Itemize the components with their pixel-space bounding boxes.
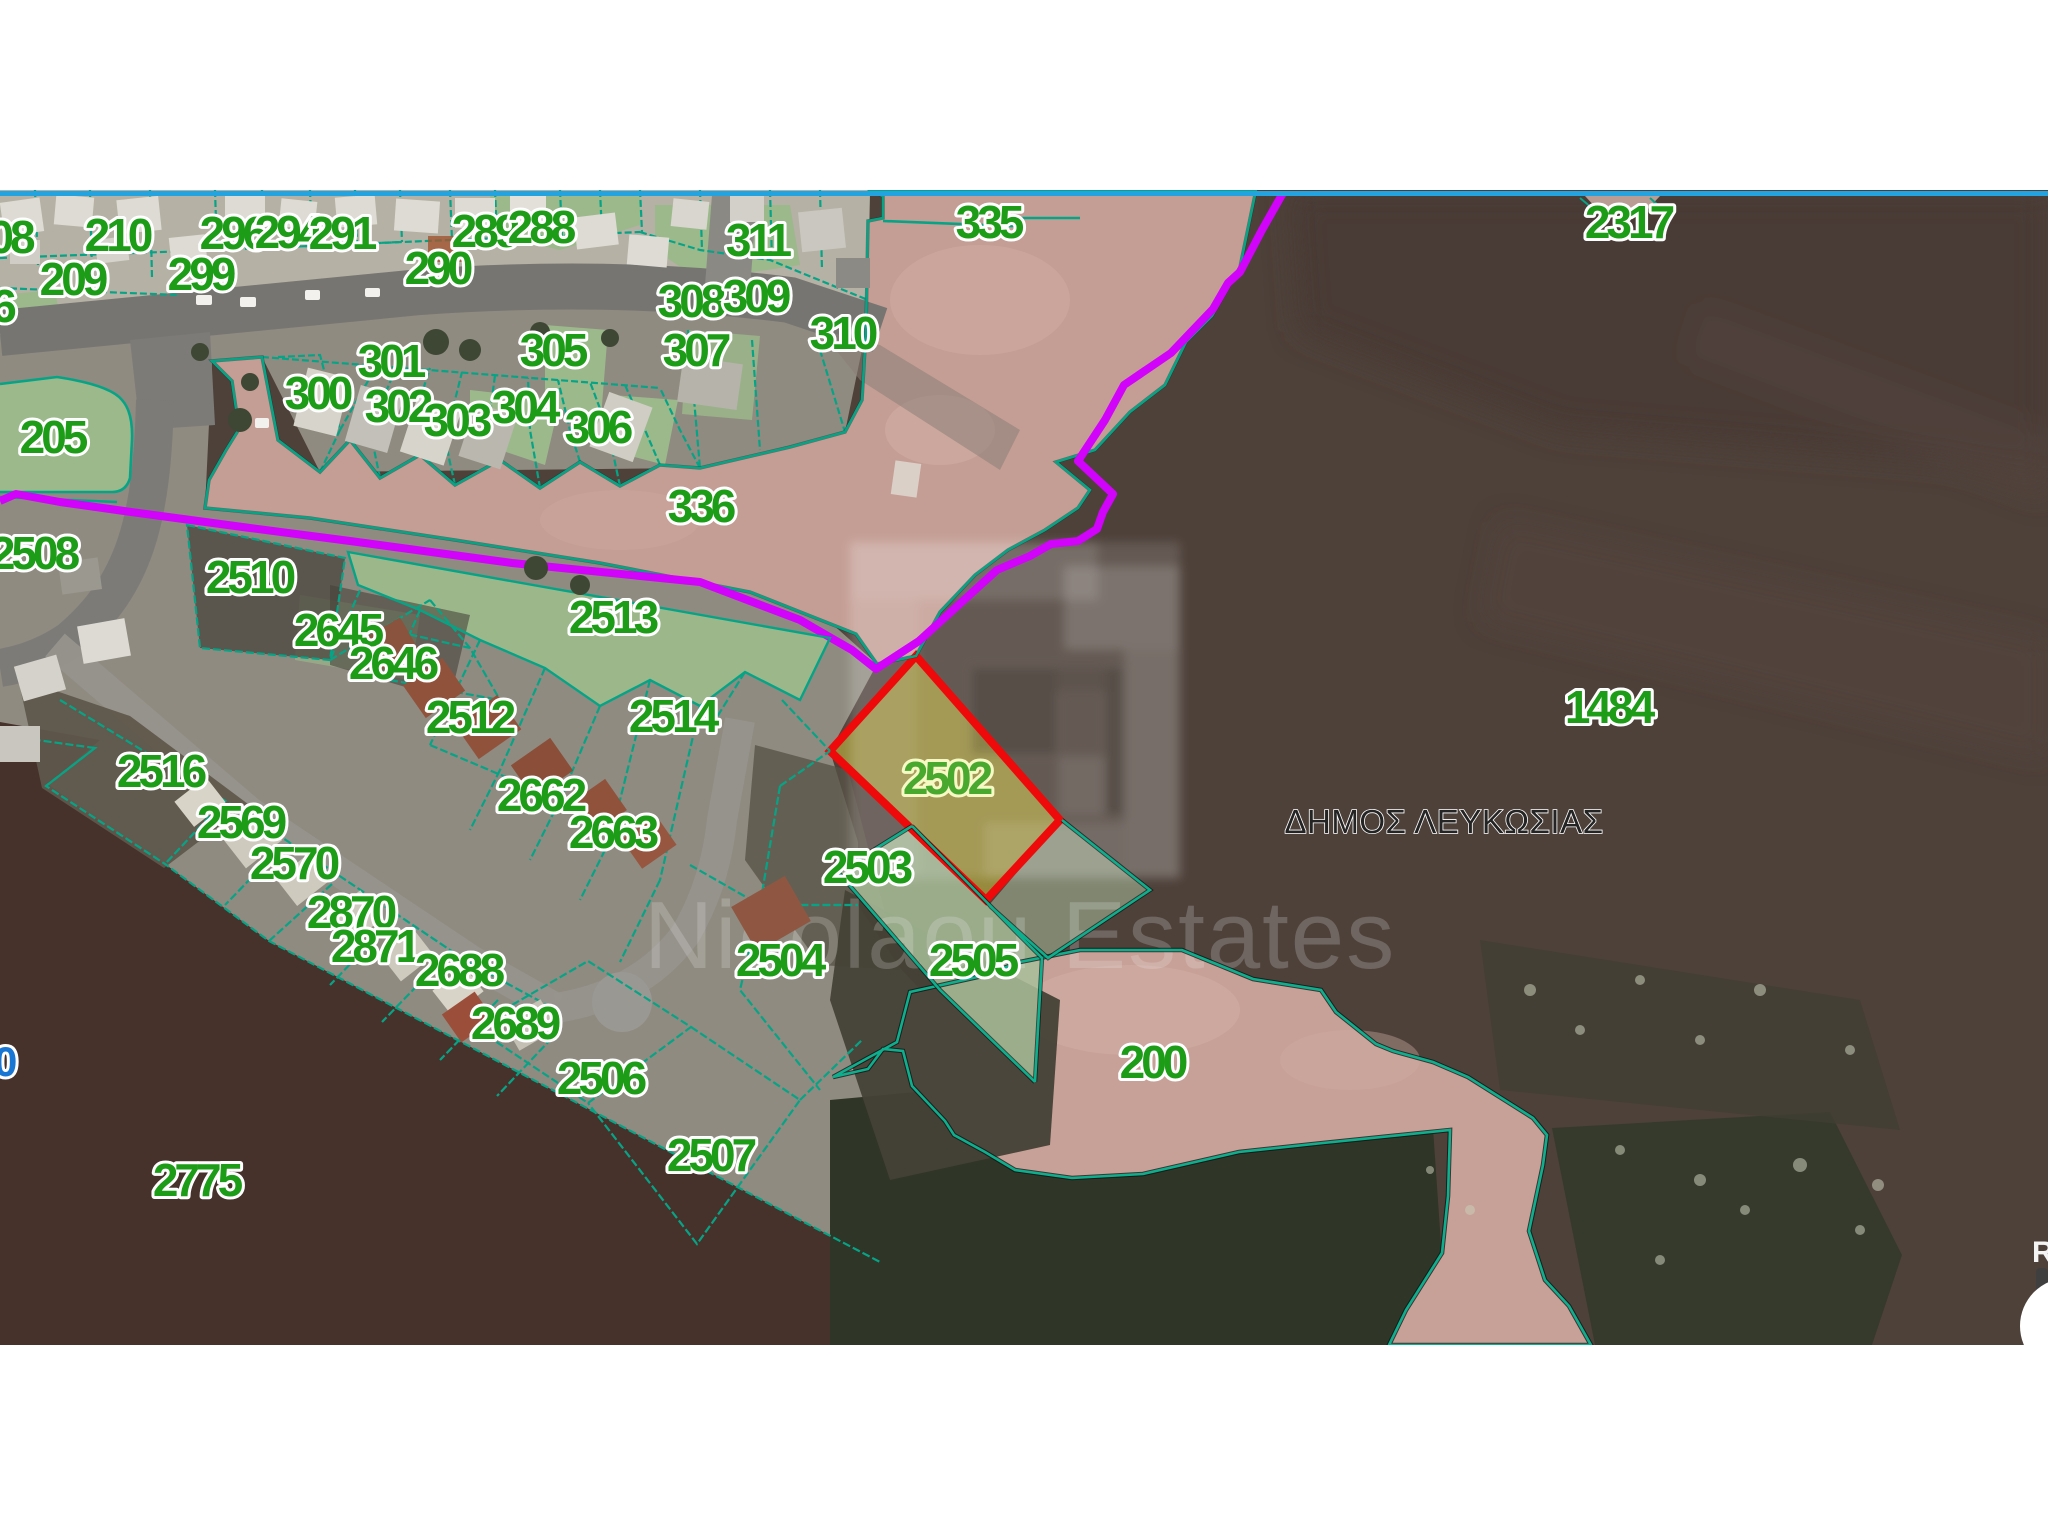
svg-text:2503: 2503 xyxy=(823,841,912,893)
svg-text:2775: 2775 xyxy=(153,1154,243,1206)
svg-text:2514: 2514 xyxy=(629,690,720,742)
svg-text:R: R xyxy=(2032,1236,2048,1269)
svg-text:303: 303 xyxy=(424,394,491,446)
svg-text:305: 305 xyxy=(520,324,588,376)
svg-text:308: 308 xyxy=(658,275,726,327)
svg-text:309: 309 xyxy=(723,270,790,322)
svg-text:2570: 2570 xyxy=(250,837,339,889)
svg-text:310: 310 xyxy=(810,307,877,359)
svg-text:2502: 2502 xyxy=(903,752,992,804)
svg-text:2663: 2663 xyxy=(569,806,658,858)
svg-text:2508: 2508 xyxy=(0,527,80,579)
svg-text:300: 300 xyxy=(285,367,352,419)
svg-text:2317: 2317 xyxy=(1585,196,1674,248)
svg-text:2512: 2512 xyxy=(426,691,515,743)
svg-text:311: 311 xyxy=(726,214,792,266)
svg-text:205: 205 xyxy=(20,411,88,463)
svg-text:200: 200 xyxy=(1120,1036,1187,1088)
svg-text:0: 0 xyxy=(0,1038,17,1085)
svg-text:08: 08 xyxy=(0,211,35,263)
svg-text:2871: 2871 xyxy=(331,920,421,972)
svg-text:288: 288 xyxy=(508,201,576,253)
svg-text:306: 306 xyxy=(565,401,632,453)
svg-text:2510: 2510 xyxy=(206,551,295,603)
svg-text:2504: 2504 xyxy=(736,934,827,986)
svg-text:2505: 2505 xyxy=(929,934,1019,986)
svg-text:ΔΗΜΟΣ ΛΕΥΚΩΣΙΑΣ: ΔΗΜΟΣ ΛΕΥΚΩΣΙΑΣ xyxy=(1284,803,1603,840)
svg-text:2689: 2689 xyxy=(471,997,560,1049)
svg-text:1484: 1484 xyxy=(1565,681,1656,733)
svg-text:304: 304 xyxy=(492,381,561,433)
svg-text:307: 307 xyxy=(663,324,730,376)
svg-text:302: 302 xyxy=(365,380,432,432)
svg-text:2513: 2513 xyxy=(569,591,658,643)
svg-text:209: 209 xyxy=(40,253,107,305)
svg-text:2688: 2688 xyxy=(415,944,505,996)
svg-text:2507: 2507 xyxy=(667,1129,756,1181)
svg-text:2516: 2516 xyxy=(117,745,206,797)
svg-text:2506: 2506 xyxy=(557,1052,646,1104)
svg-text:336: 336 xyxy=(668,480,735,532)
svg-text:291: 291 xyxy=(309,207,377,259)
svg-text:2646: 2646 xyxy=(349,637,438,689)
svg-text:335: 335 xyxy=(956,196,1024,248)
